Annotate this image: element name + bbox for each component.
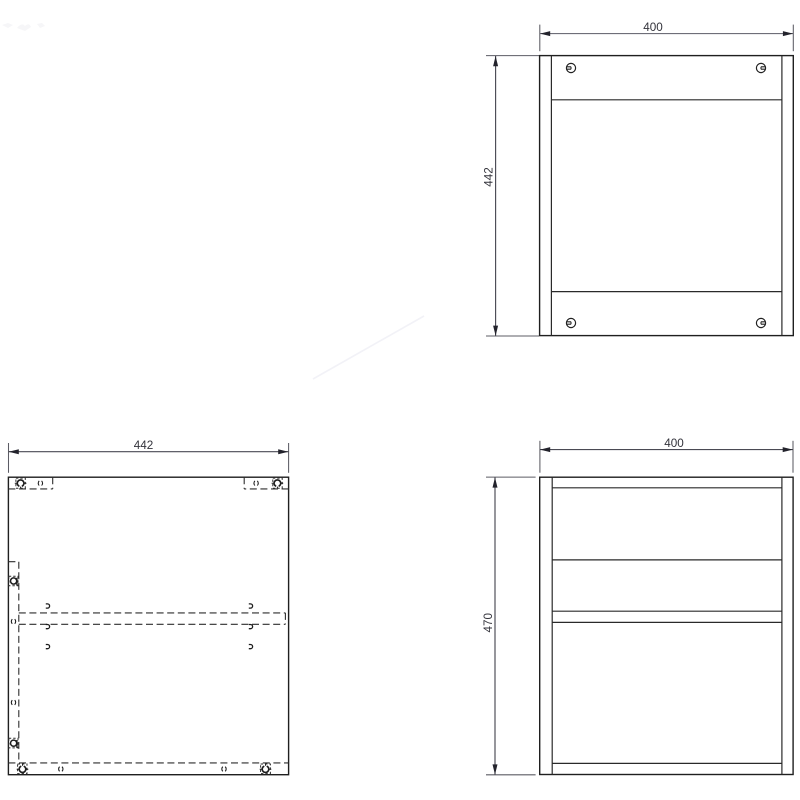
svg-text:442: 442 xyxy=(483,167,496,187)
svg-text:470: 470 xyxy=(482,612,495,632)
svg-text:400: 400 xyxy=(643,21,663,34)
svg-text:442: 442 xyxy=(134,439,154,452)
svg-text:400: 400 xyxy=(664,437,684,450)
